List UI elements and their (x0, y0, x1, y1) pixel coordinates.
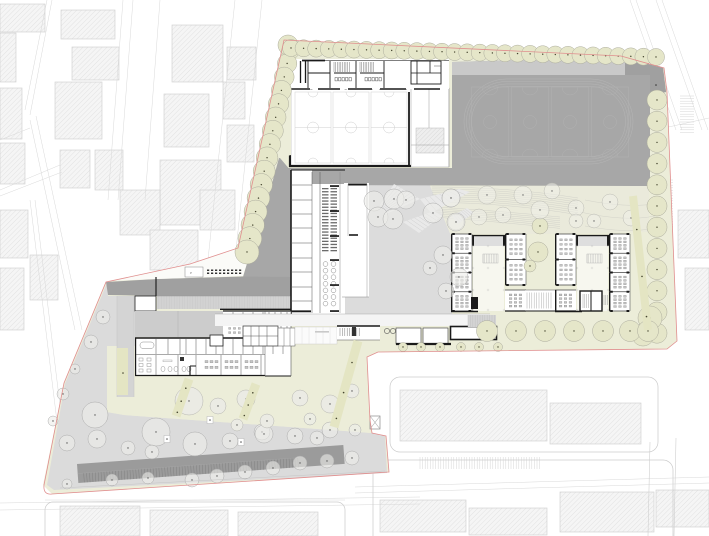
svg-text:P: P (190, 271, 192, 275)
